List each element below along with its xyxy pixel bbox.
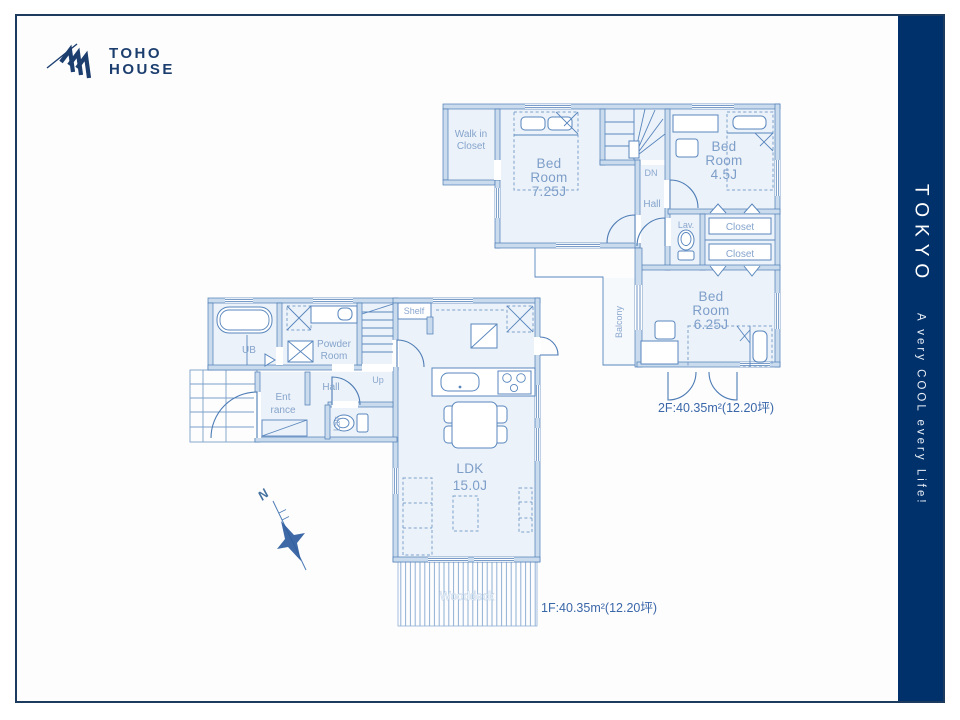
- bedroom-625-label-1: Bed: [699, 289, 724, 304]
- shelf-label: Shelf: [404, 306, 425, 316]
- walk-in-closet-label-2: Closet: [457, 141, 486, 152]
- flyer-card: TOHO HOUSE: [15, 14, 945, 703]
- bedroom-625-label-3: 6.25J: [694, 317, 729, 332]
- floor1-plan: Wooddeck: [190, 298, 657, 626]
- kitchen-counter: [432, 368, 535, 396]
- walk-in-closet-label-1: Walk in: [455, 129, 487, 140]
- up-label: Up: [372, 375, 384, 385]
- dn-label: DN: [645, 168, 658, 178]
- entrance-label-2: rance: [270, 405, 295, 416]
- hall-1f-label: Hall: [322, 382, 339, 393]
- wooddeck-label: Wooddeck: [440, 591, 494, 603]
- right-banner: TOKYO A very COOL every Life!: [898, 16, 943, 701]
- closet-lower-label: Closet: [726, 249, 755, 260]
- bedroom-45-label-2: Room: [705, 153, 742, 168]
- bedroom-725-label-1: Bed: [537, 156, 562, 171]
- floor1-area-label: 1F:40.35m²(12.20坪): [541, 601, 657, 615]
- closet-upper-label: Closet: [726, 222, 755, 233]
- bedroom-725-label-2: Room: [530, 170, 567, 185]
- floor2-area-label: 2F:40.35m²(12.20坪): [658, 401, 774, 415]
- kitchen-cabinet-icon: [471, 324, 497, 348]
- bedroom-45-label-3: 4.5J: [711, 167, 738, 182]
- ldk-label-1: LDK: [456, 461, 483, 476]
- banner-city-label: TOKYO: [910, 184, 932, 285]
- floor-plan-drawing: Walk in Closet Bed Room 7.25J Bed Room 4…: [0, 0, 960, 720]
- compass-rose: N: [255, 485, 306, 570]
- lav-1f-label: Lav.: [332, 415, 342, 431]
- wooddeck: Wooddeck: [398, 562, 537, 626]
- banner-tagline: A very COOL every Life!: [915, 313, 927, 506]
- cabinet-icon: [288, 341, 313, 362]
- ldk-label-2: 15.0J: [453, 478, 488, 493]
- toilet-icon-2f: [678, 230, 694, 260]
- entrance-label-1: Ent: [275, 392, 290, 403]
- powder-label-2: Room: [321, 351, 348, 362]
- bedroom-625-label-2: Room: [692, 303, 729, 318]
- balcony-label: Balcony: [614, 305, 624, 338]
- hall-2f-label: Hall: [643, 199, 660, 210]
- bedroom-725-label-3: 7.25J: [532, 184, 567, 199]
- powder-label-1: Powder: [317, 339, 352, 350]
- north-label: N: [255, 485, 272, 503]
- vanity-icon: [311, 306, 357, 323]
- bedroom-45-label-1: Bed: [712, 139, 737, 154]
- ub-label: UB: [242, 345, 256, 356]
- lav-2f-label: Lav.: [678, 220, 694, 230]
